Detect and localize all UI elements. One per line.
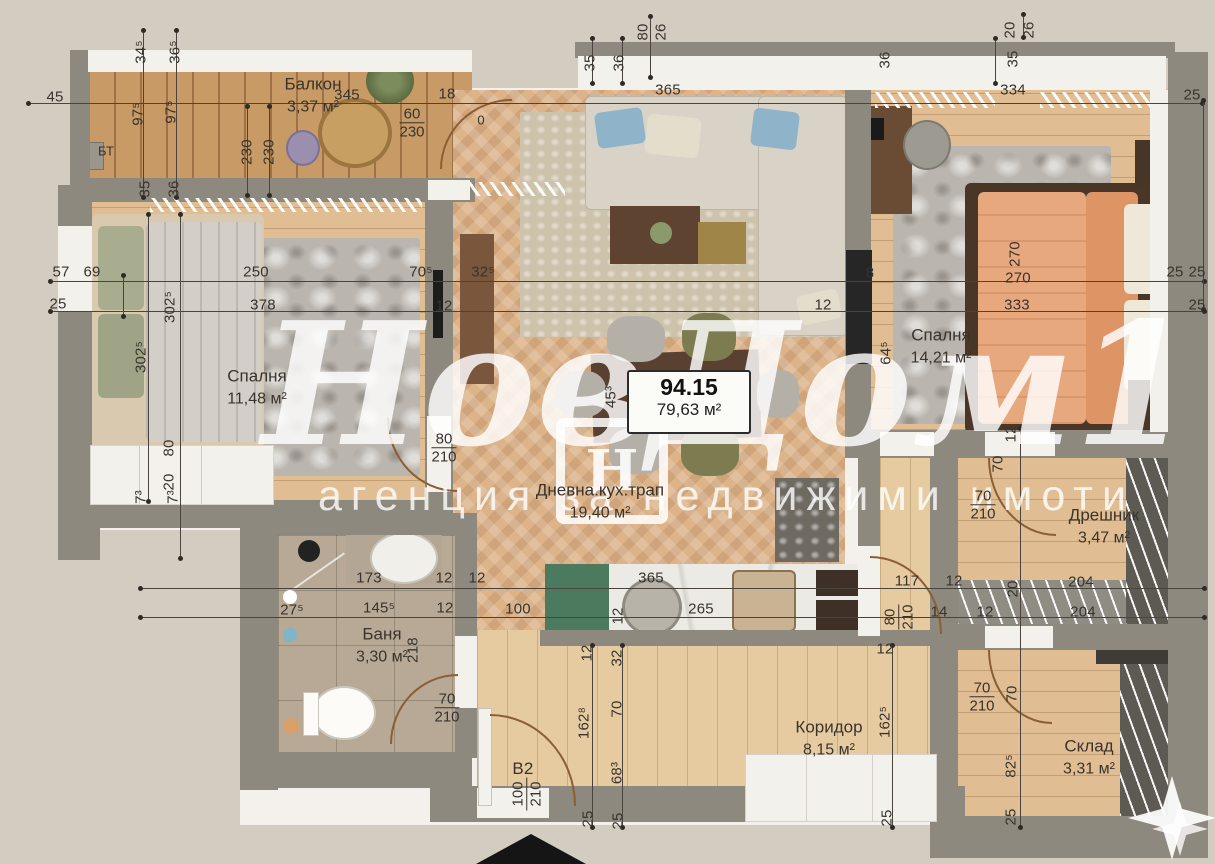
- bath-accessory-2: [283, 628, 297, 642]
- side-table-gold: [698, 222, 746, 264]
- dim-label: 20: [1005, 580, 1022, 597]
- dim-label: 117: [895, 573, 920, 590]
- dining-chair-gray-3: [609, 428, 665, 474]
- dim-label: 204: [1070, 604, 1096, 621]
- dim-label: 7³: [133, 490, 150, 504]
- dim-line: [50, 281, 1205, 282]
- door-size-label: 80210: [881, 604, 917, 629]
- wall: [70, 50, 90, 192]
- corridor-cabinet: [745, 754, 937, 822]
- dim-label: 36: [877, 51, 894, 68]
- dim-line: [995, 38, 996, 84]
- dim-label: 25: [49, 296, 66, 313]
- dim-label: 204: [1068, 574, 1094, 591]
- cooktop: [732, 570, 796, 632]
- dim-label: 27⁵: [280, 602, 304, 619]
- door-size-label: 80210: [431, 430, 456, 466]
- dim-label: 7³: [165, 490, 182, 504]
- annotation-label: 0: [477, 113, 484, 128]
- dim-label: 34⁵: [133, 40, 150, 64]
- dim-label: 378: [250, 297, 276, 314]
- dim-label: 45³: [603, 386, 620, 408]
- curtain-hatch-right-1: [875, 92, 995, 108]
- dim-label: 70: [609, 700, 626, 717]
- area-summary-box: 94.15 79,63 м²: [627, 370, 751, 434]
- bath-accessory-3: [283, 718, 299, 734]
- dim-line: [123, 275, 124, 317]
- curtain-hatch-left: [150, 198, 422, 212]
- dim-label: 12: [468, 570, 485, 587]
- room-label-bedroom-right: Спалня14,21 м²: [911, 325, 972, 370]
- dim-line: [50, 311, 1205, 312]
- dim-label: 302⁵: [162, 291, 179, 323]
- dim-label: 57: [52, 264, 69, 281]
- dim-label: 25: [1003, 808, 1020, 825]
- dim-label: 230: [239, 139, 256, 165]
- door-size-label: 100210: [509, 777, 545, 810]
- kitchen-cabinet-green: [545, 564, 609, 632]
- dim-label: 12: [610, 607, 627, 624]
- storage-shelving: [1120, 648, 1168, 818]
- dim-label: 26: [653, 23, 670, 40]
- dim-label: 173: [356, 570, 382, 587]
- dim-label: 162⁸: [576, 707, 593, 739]
- dim-label: 333: [1004, 297, 1030, 314]
- media-panel-left: [460, 234, 494, 384]
- toilet-bowl: [312, 686, 376, 740]
- wall-face-right: [1150, 90, 1168, 432]
- door-size-label: 70210: [969, 679, 994, 715]
- dim-line: [28, 103, 1203, 104]
- kitchen-mat: [775, 478, 839, 562]
- dim-label: 20: [1002, 21, 1019, 38]
- storage-shelf-top: [1096, 648, 1168, 664]
- dim-label: 32⁵: [471, 264, 495, 281]
- dim-label: 12: [436, 600, 453, 617]
- wall: [240, 520, 278, 790]
- room-label-storage: Склад3,31 м²: [1063, 736, 1115, 781]
- pillow-cream-1: [644, 113, 702, 158]
- dim-label: 35: [137, 180, 154, 197]
- room-label-balcony: Балкон3,37 м²: [284, 74, 341, 119]
- shower-head-icon: [298, 540, 320, 562]
- door-gap-balcony: [428, 180, 470, 200]
- wardrobe-left: [90, 445, 274, 505]
- room-label-closet: Дрешник3,47 м²: [1069, 505, 1139, 550]
- dim-label: 25: [580, 810, 597, 827]
- toilet-tank: [303, 692, 319, 736]
- entrance-arrow-icon: [476, 834, 586, 864]
- dim-label: 36: [166, 180, 183, 197]
- bed-right-duvet: [978, 192, 1086, 424]
- dim-label: 64⁵: [878, 341, 895, 365]
- dim-label: 68³: [609, 762, 626, 784]
- dim-label: 35: [582, 54, 599, 71]
- dim-label: 25: [1166, 264, 1183, 281]
- dim-label: 36: [611, 54, 628, 71]
- dim-label: 80: [161, 439, 178, 456]
- dim-label: 69: [83, 264, 100, 281]
- dim-line: [140, 588, 1205, 589]
- dim-line: [1020, 428, 1021, 828]
- dim-label: 365: [638, 570, 664, 587]
- dim-label: 97⁵: [130, 102, 147, 126]
- table-plant-icon: [650, 222, 672, 244]
- dim-label: 20: [161, 473, 178, 490]
- dim-label: 250: [243, 264, 269, 281]
- kitchen-unit-dark-2: [816, 600, 862, 630]
- dining-chair-gray-2: [556, 371, 606, 417]
- dim-label: 25: [1183, 87, 1200, 104]
- dining-chair-gray-1: [607, 316, 665, 362]
- dim-label: 97⁵: [163, 100, 180, 124]
- dim-label: 25: [610, 812, 627, 829]
- dining-chair-olive-1: [682, 313, 736, 361]
- dim-label: 162⁵: [877, 706, 894, 738]
- door-size-label: 70210: [434, 690, 459, 726]
- dim-label: 302⁵: [133, 341, 150, 373]
- dim-line: [622, 645, 623, 828]
- dim-label: 70⁵: [409, 264, 433, 281]
- dim-label: 365: [655, 82, 681, 99]
- annotation-label: БТ: [98, 144, 114, 159]
- room-label-corridor: Коридор8,15 м²: [795, 717, 862, 762]
- dim-label: 145⁵: [363, 600, 395, 617]
- dim-label: 45: [46, 89, 63, 106]
- dim-label: 100: [505, 601, 531, 618]
- desk-chair: [903, 120, 951, 170]
- dim-label: 265: [688, 601, 714, 618]
- dim-label: 270: [1007, 241, 1024, 267]
- dim-label: 25: [1188, 297, 1205, 314]
- wall: [240, 752, 472, 788]
- dim-label: 12: [435, 298, 452, 315]
- door-size-label: 70210: [970, 487, 995, 523]
- dim-label: 230: [261, 139, 278, 165]
- dim-label: 32: [609, 649, 626, 666]
- dim-label: 12: [1003, 425, 1020, 442]
- dim-label: 12: [945, 573, 962, 590]
- dim-label: 8: [866, 265, 875, 282]
- dim-label: 80: [635, 23, 652, 40]
- door-gap-storage: [985, 626, 1053, 648]
- dim-label: 334: [1000, 82, 1026, 99]
- room-label-bathroom: Баня3,30 м²: [356, 624, 408, 669]
- dim-label: 35: [1005, 50, 1022, 67]
- pillow-sage-1: [98, 226, 144, 310]
- dim-label: 12: [976, 604, 993, 621]
- room-label-living: Дневна.кух.трап19,40 м²: [536, 480, 664, 525]
- dim-label: 25: [1188, 264, 1205, 281]
- dim-label: 70: [990, 455, 1007, 472]
- balcony-table: [286, 130, 320, 166]
- pillow-blue-1: [594, 107, 647, 149]
- dim-label: 82⁵: [1003, 754, 1020, 778]
- dim-label: 18: [438, 86, 455, 103]
- room-label-bedroom-left: Спалня11,48 м²: [227, 366, 287, 411]
- dim-label: 12: [818, 575, 835, 592]
- dim-label: 12: [579, 644, 596, 661]
- total-area-value: 94.15: [629, 375, 749, 400]
- door-gap-bedroom-right: [880, 432, 934, 456]
- dim-label: 12: [876, 641, 893, 658]
- net-area-value: 79,63 м²: [629, 400, 749, 420]
- dim-label: 12: [435, 570, 452, 587]
- dim-label: 14: [930, 604, 947, 621]
- dim-label: 25: [879, 809, 896, 826]
- curtain-hatch-living: [455, 182, 565, 196]
- dim-label: 36⁵: [167, 40, 184, 64]
- wall: [1168, 52, 1208, 836]
- dim-label: 270: [1005, 270, 1031, 287]
- dim-line: [180, 214, 181, 559]
- kitchen-sink: [622, 578, 682, 636]
- pillow-blue-2: [750, 107, 800, 150]
- dim-label: 26: [1021, 21, 1038, 38]
- dim-label: 12: [814, 297, 831, 314]
- dining-chair-gray-4: [757, 370, 799, 418]
- door-size-label: 60230: [399, 105, 424, 141]
- curtain-hatch-right-2: [1040, 92, 1165, 108]
- dim-label: 70: [1004, 685, 1021, 702]
- floor-plan: Нов Дом1 Н агенция за недвижими имоти 94…: [0, 0, 1215, 864]
- entrance-tag: B2: [512, 759, 533, 779]
